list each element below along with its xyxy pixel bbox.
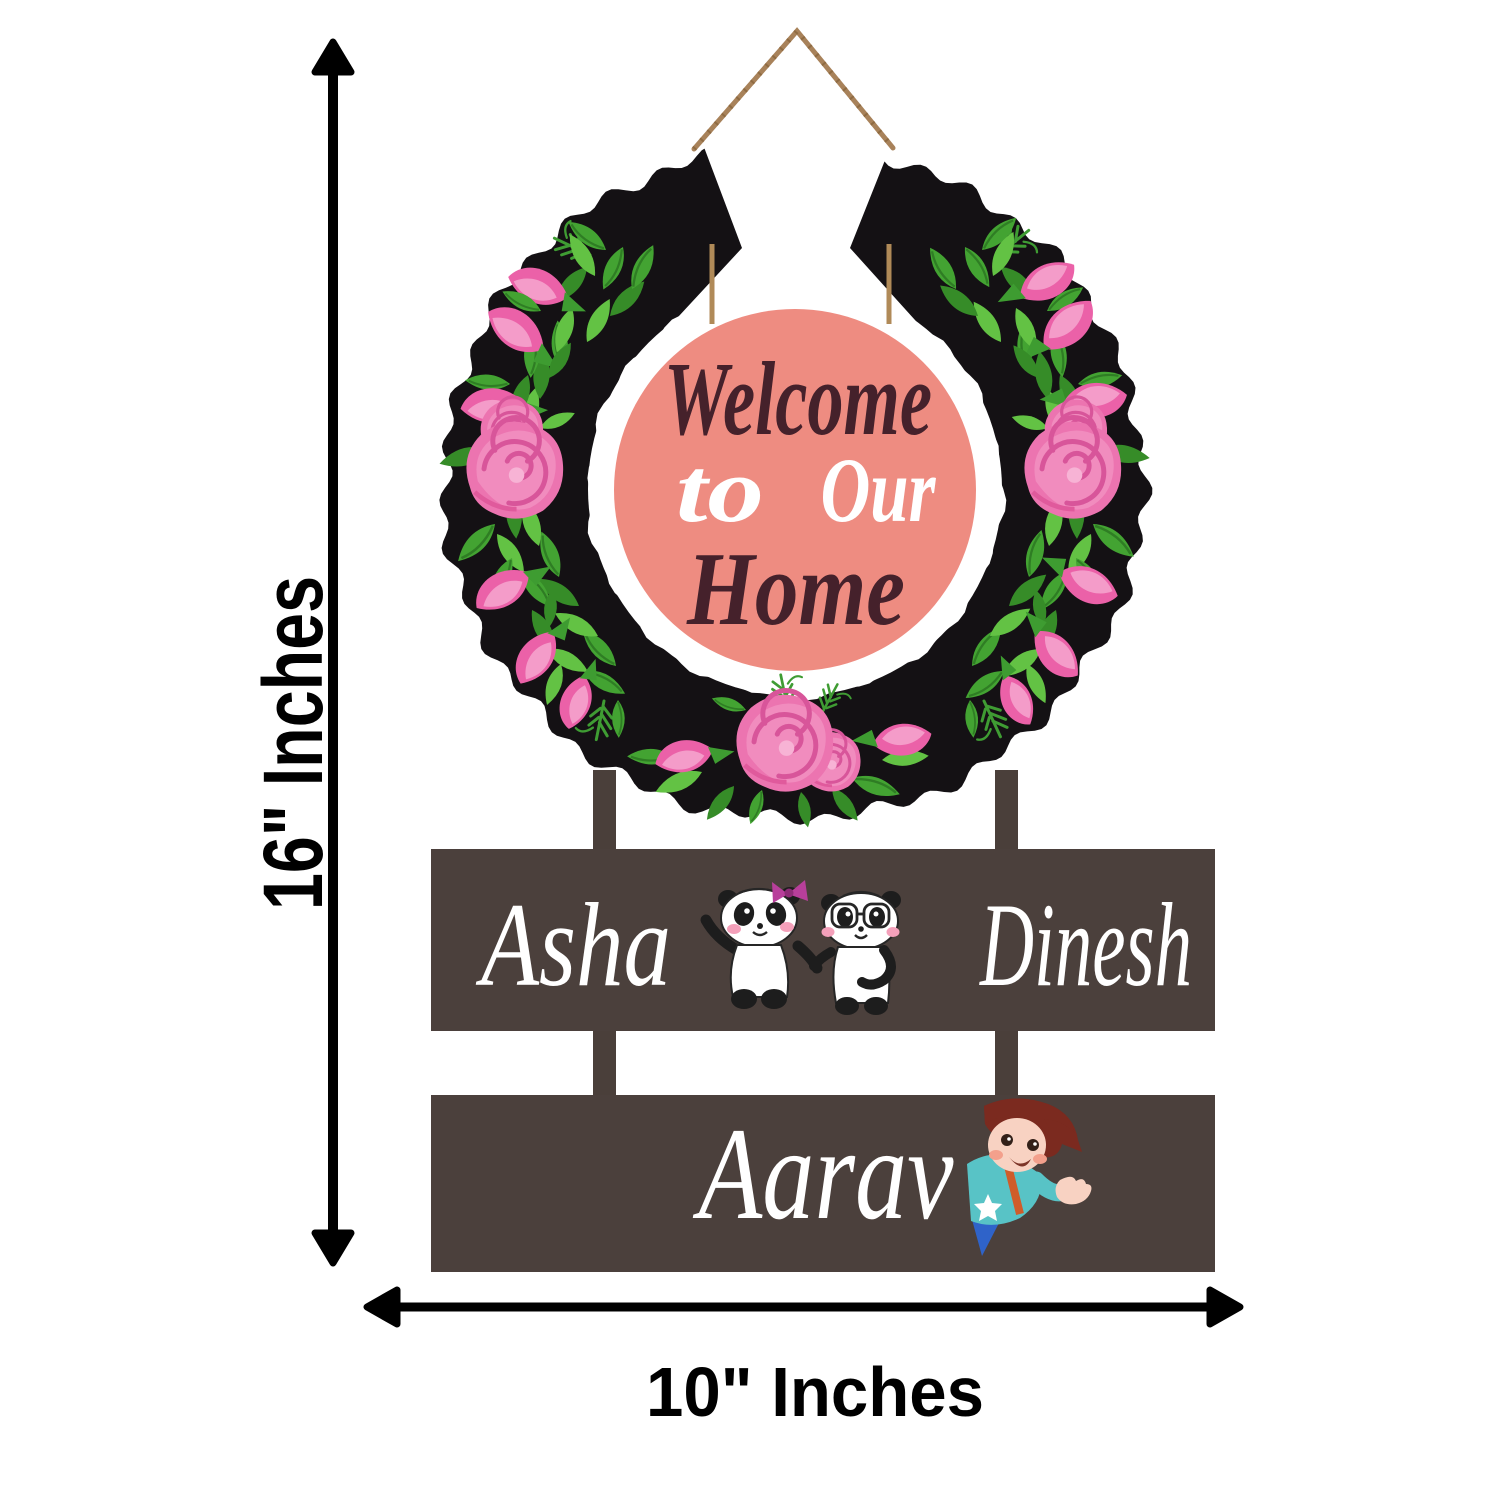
svg-text:Dinesh: Dinesh — [979, 878, 1192, 1011]
svg-text:Our: Our — [821, 439, 937, 541]
svg-text:Asha: Asha — [475, 878, 671, 1011]
svg-text:16" Inches: 16" Inches — [246, 576, 340, 910]
svg-text:Home: Home — [686, 530, 905, 647]
svg-text:Aarav: Aarav — [692, 1100, 954, 1247]
svg-text:to: to — [676, 439, 764, 541]
svg-text:10" Inches: 10" Inches — [646, 1353, 984, 1431]
